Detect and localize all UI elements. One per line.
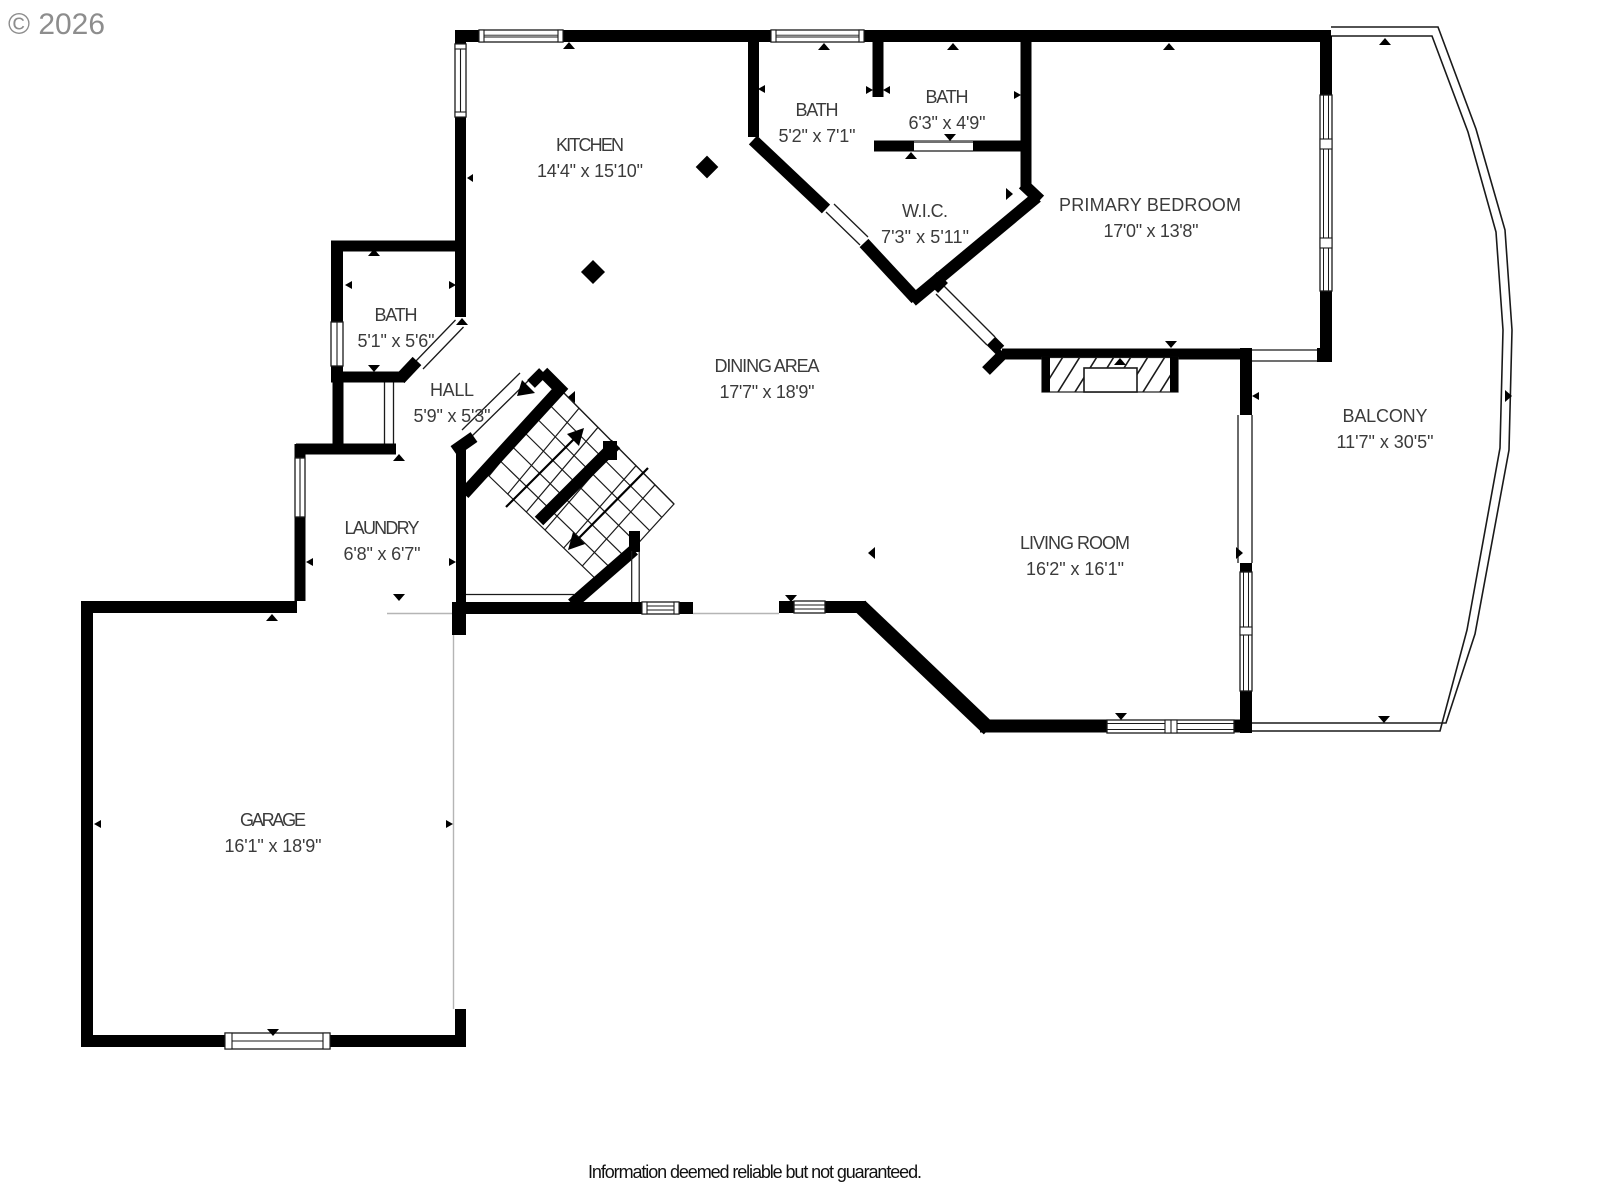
svg-text:LAUNDRY: LAUNDRY <box>345 518 420 538</box>
svg-text:Information deemed reliable bu: Information deemed reliable but not guar… <box>588 1162 922 1182</box>
svg-text:5'9" x 5'3": 5'9" x 5'3" <box>414 406 491 426</box>
svg-text:HALL: HALL <box>430 380 474 400</box>
svg-text:14'4" x 15'10": 14'4" x 15'10" <box>537 161 643 181</box>
svg-text:5'1" x 5'6": 5'1" x 5'6" <box>358 331 435 351</box>
svg-text:© 2026: © 2026 <box>8 8 105 41</box>
svg-text:5'2" x 7'1": 5'2" x 7'1" <box>779 126 856 146</box>
svg-text:6'3" x 4'9": 6'3" x 4'9" <box>909 113 986 133</box>
svg-text:11'7" x 30'5": 11'7" x 30'5" <box>1337 432 1434 452</box>
svg-text:BALCONY: BALCONY <box>1343 406 1428 426</box>
svg-text:DINING AREA: DINING AREA <box>715 356 820 376</box>
svg-text:KITCHEN: KITCHEN <box>556 135 624 155</box>
svg-text:BATH: BATH <box>796 100 839 120</box>
svg-text:17'7" x 18'9": 17'7" x 18'9" <box>720 382 815 402</box>
svg-text:GARAGE: GARAGE <box>240 810 306 830</box>
svg-text:W.I.C.: W.I.C. <box>902 201 948 221</box>
svg-text:PRIMARY BEDROOM: PRIMARY BEDROOM <box>1059 195 1241 215</box>
svg-text:17'0" x 13'8": 17'0" x 13'8" <box>1104 221 1199 241</box>
svg-text:BATH: BATH <box>926 87 969 107</box>
svg-text:16'1" x 18'9": 16'1" x 18'9" <box>225 836 322 856</box>
svg-text:6'8" x 6'7": 6'8" x 6'7" <box>344 544 421 564</box>
svg-text:BATH: BATH <box>375 305 418 325</box>
svg-text:7'3" x 5'11": 7'3" x 5'11" <box>881 227 969 247</box>
svg-text:LIVING ROOM: LIVING ROOM <box>1020 533 1130 553</box>
svg-text:16'2" x 16'1": 16'2" x 16'1" <box>1026 559 1124 579</box>
